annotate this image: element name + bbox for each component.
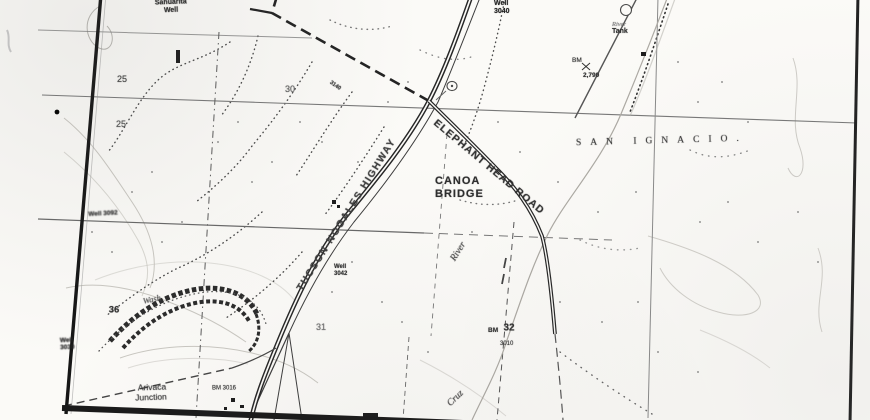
bm-3016-label: BM 3016 xyxy=(212,386,236,393)
minor-road-bottom-left xyxy=(64,348,276,406)
route-shield-topright xyxy=(621,5,632,16)
section-number-32: 32 xyxy=(503,322,514,334)
well-3042-label: Well 3042 xyxy=(334,264,347,278)
arivaca-line2: Junction xyxy=(135,392,167,403)
canoa-bridge-line1: CANOA xyxy=(435,175,484,188)
river-tank-label: River Tank xyxy=(612,21,628,37)
subdivision-loop xyxy=(99,288,266,352)
section-number-36: 36 xyxy=(109,306,120,317)
neatlines xyxy=(62,0,864,420)
place-label-arivaca-junction: Arivaca Junction xyxy=(138,383,167,404)
bm-2790-bm: BM xyxy=(572,57,582,64)
well-topright-line2: 3040 xyxy=(494,8,510,16)
section-number-30: 30 xyxy=(285,84,295,94)
margin-marks xyxy=(7,30,59,114)
well-3092-label: Well 3092 xyxy=(88,209,118,218)
canoa-bridge-line2: BRIDGE xyxy=(435,188,484,201)
place-label-canoa-bridge: CANOA BRIDGE xyxy=(435,175,484,200)
bm-3010-value: 3010 xyxy=(500,341,513,348)
river-tank-line2: Tank xyxy=(612,28,628,36)
bm-3010-label: BM xyxy=(488,327,498,334)
section-number-25a: 25 xyxy=(117,74,127,84)
section-number-25b: 25 xyxy=(116,119,126,129)
bm-2790-value: 2,790 xyxy=(583,72,599,79)
well-topright-line1: Well xyxy=(494,0,510,8)
section-number-31: 31 xyxy=(316,322,326,332)
well-3042-line2: 3042 xyxy=(334,271,347,278)
bm-2790-label: BM xyxy=(572,57,582,64)
well-3030-label: Well 3030 xyxy=(60,337,75,352)
speckle-dots xyxy=(91,61,819,373)
well-3042-line1: Well xyxy=(334,264,347,271)
elephant-head-road xyxy=(429,101,563,420)
topo-map-scan: TUCSON-NOGALES HIGHWAY ELEPHANT HEAD ROA… xyxy=(0,0,870,420)
well-3030-line2: 3030 xyxy=(60,344,75,352)
sahuarita-well-label: Sahuarita Well xyxy=(155,0,187,16)
secondary-road-topright xyxy=(575,0,638,118)
well-topright-label: Well 3040 xyxy=(494,0,510,16)
map-linework xyxy=(0,0,870,420)
sahuarita-well-line2: Well xyxy=(155,6,187,15)
